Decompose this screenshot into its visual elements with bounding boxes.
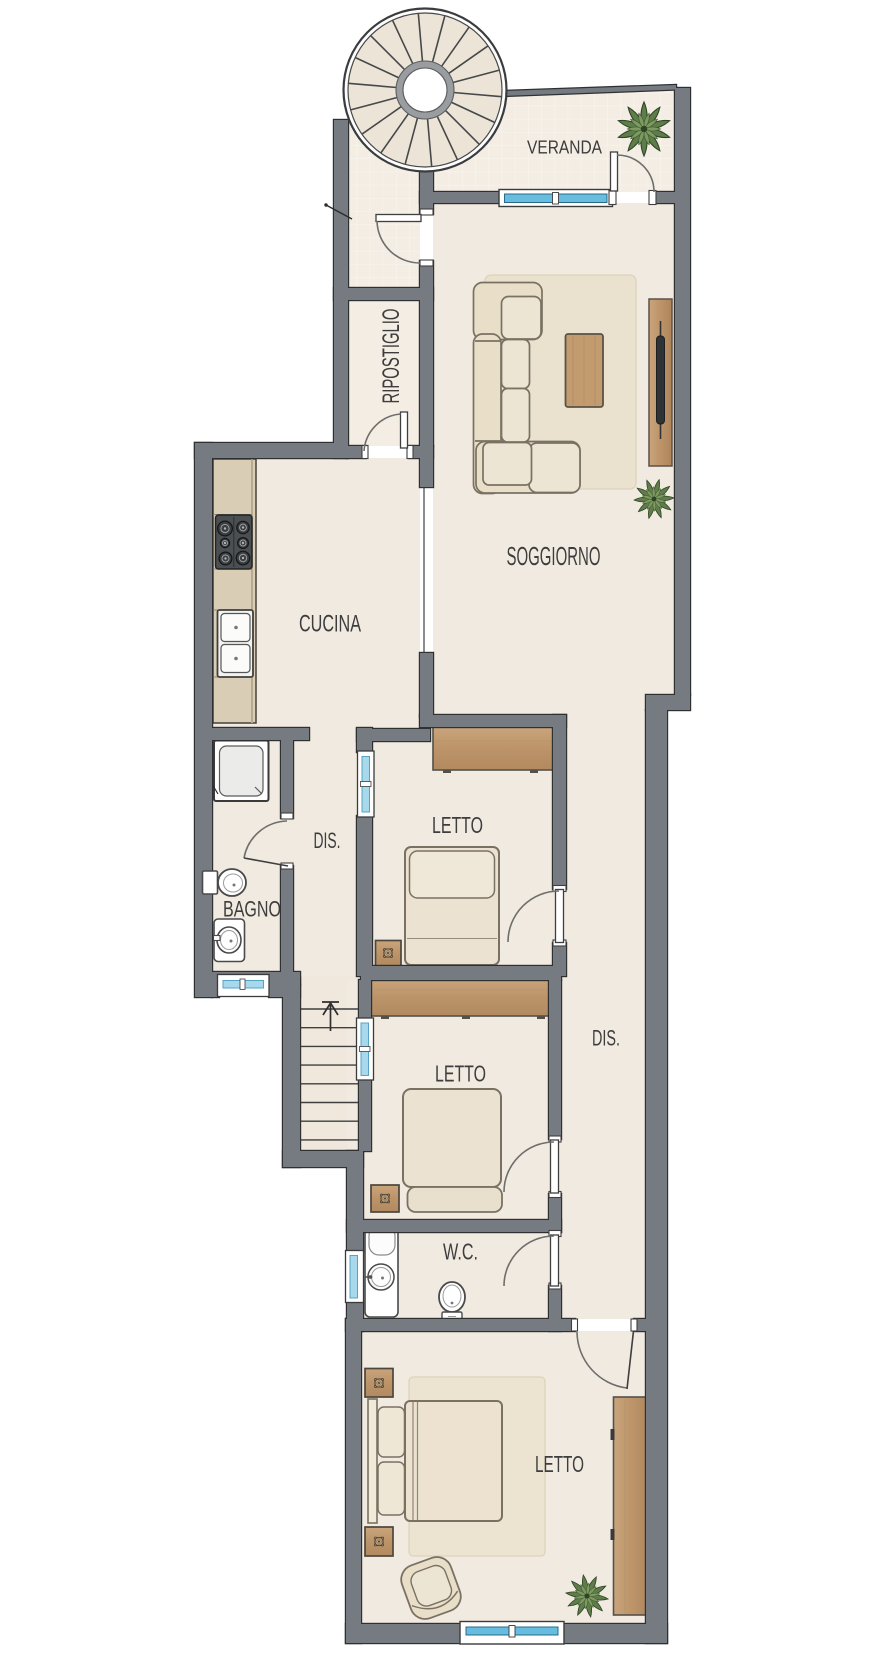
svg-text:DIS.: DIS. <box>314 828 341 853</box>
svg-text:DIS.: DIS. <box>592 1026 620 1051</box>
svg-text:LETTO: LETTO <box>432 812 483 838</box>
svg-text:VERANDA: VERANDA <box>527 137 603 158</box>
svg-text:RIPOSTIGLIO: RIPOSTIGLIO <box>378 309 405 404</box>
svg-text:BAGNO: BAGNO <box>223 897 281 922</box>
svg-text:LETTO: LETTO <box>535 1451 584 1477</box>
svg-text:SOGGIORNO: SOGGIORNO <box>507 543 601 571</box>
svg-text:LETTO: LETTO <box>435 1061 486 1087</box>
svg-text:CUCINA: CUCINA <box>299 611 361 638</box>
svg-text:W.C.: W.C. <box>443 1239 478 1265</box>
